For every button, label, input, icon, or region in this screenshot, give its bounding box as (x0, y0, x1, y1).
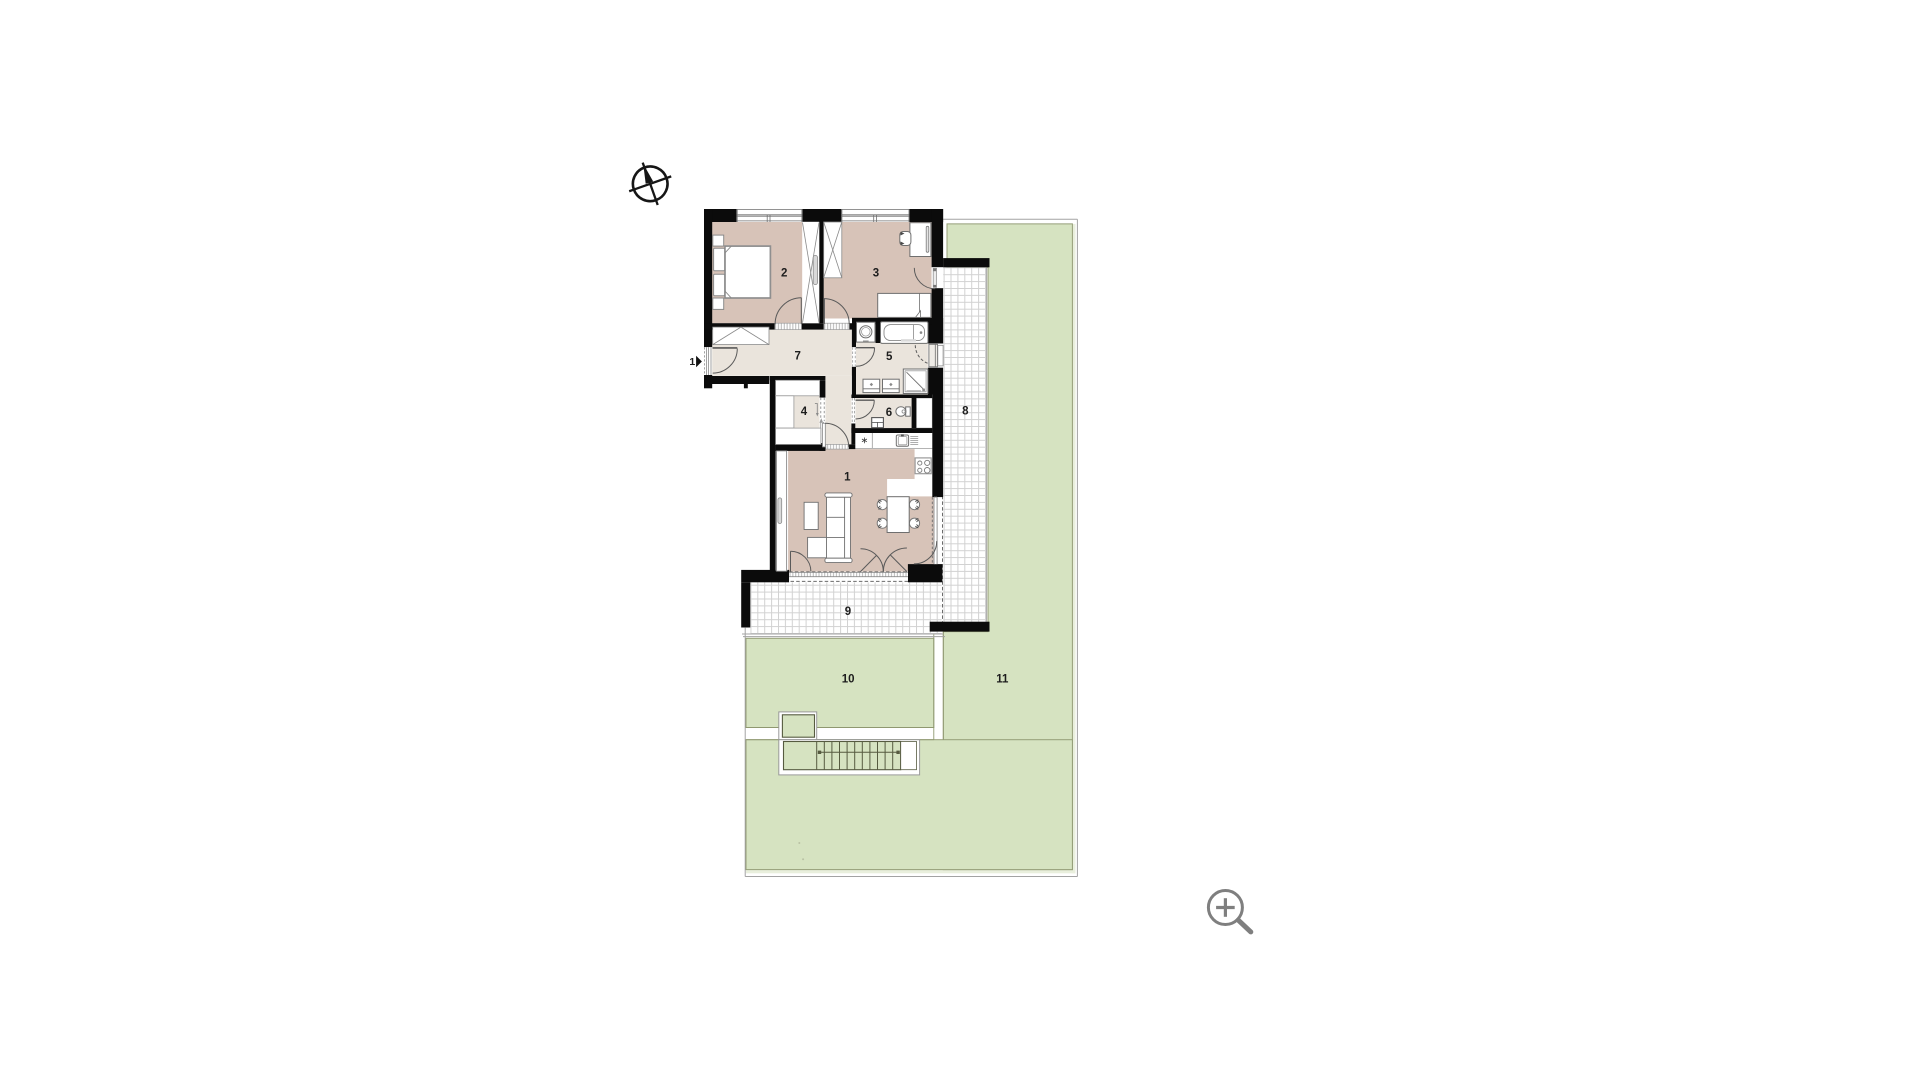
svg-text:4: 4 (801, 406, 808, 418)
svg-text:2: 2 (781, 268, 787, 280)
svg-text:8: 8 (962, 406, 969, 418)
svg-text:11: 11 (996, 673, 1009, 685)
svg-text:9: 9 (845, 606, 851, 618)
svg-text:10: 10 (842, 673, 855, 685)
svg-text:3: 3 (873, 268, 879, 280)
svg-text:1: 1 (689, 356, 695, 368)
svg-text:1: 1 (844, 471, 851, 483)
svg-text:7: 7 (794, 350, 800, 362)
svg-text:5: 5 (886, 351, 893, 363)
svg-text:6: 6 (886, 407, 892, 419)
